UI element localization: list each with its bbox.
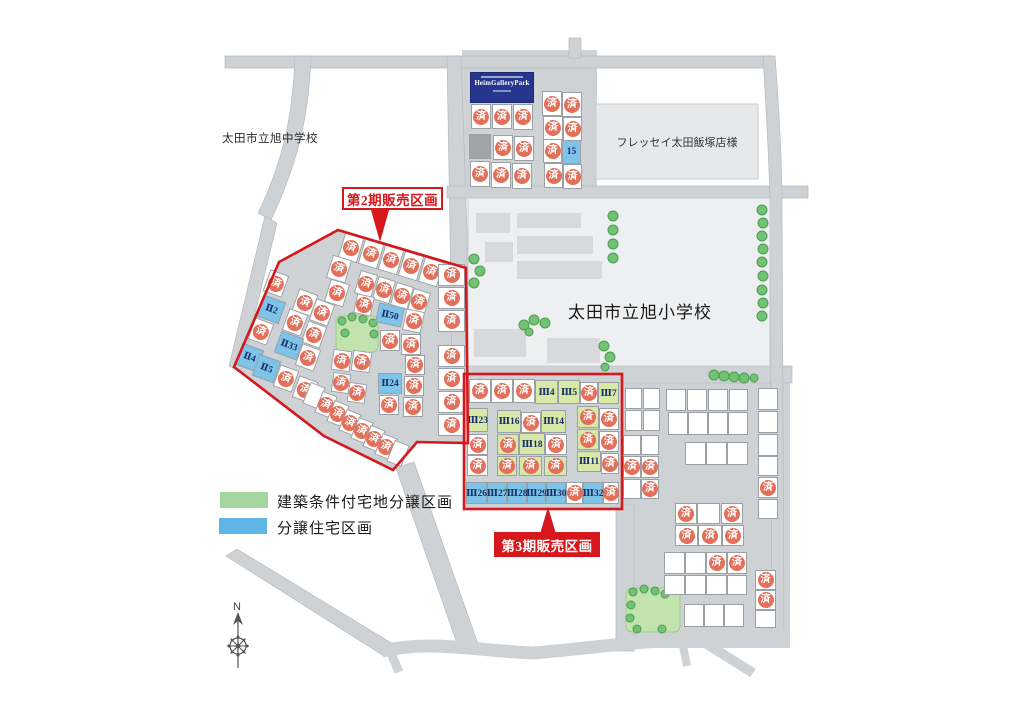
phase2-label-pointer (371, 210, 389, 242)
phase3-boundary (464, 374, 622, 509)
phase3-label-pointer (540, 507, 556, 534)
sign-decoration (493, 90, 511, 92)
heim-gallery-park-sign: HeimGalleryPark (470, 72, 534, 103)
sign-title: HeimGalleryPark (471, 80, 533, 88)
compass: N (227, 601, 249, 668)
compass-north-label: N (233, 601, 241, 613)
sign-decoration (481, 76, 523, 78)
legend-swatch-housing (219, 518, 267, 534)
site-map: 済済済済済済済済済済済済済15済済済済済済済済済済済済済済Ⅱ50済済済済済済済済… (0, 0, 1024, 724)
legend-label-conditional-land: 建築条件付宅地分譲区画 (277, 491, 453, 512)
map-overlay-layer: N (0, 0, 1024, 724)
junior-high-school-label: 太田市立旭中学校 (222, 130, 318, 146)
legend-label-housing: 分譲住宅区画 (277, 517, 373, 538)
elementary-school-label: 太田市立旭小学校 (565, 298, 715, 323)
phase2-sales-label: 第2期販売区画 (342, 187, 443, 210)
phase3-sales-label: 第3期販売区画 (494, 532, 600, 557)
legend-swatch-conditional-land (220, 492, 268, 508)
supermarket-label: フレッセイ太田飯塚店様 (600, 134, 754, 150)
phase2-boundary (234, 230, 468, 470)
